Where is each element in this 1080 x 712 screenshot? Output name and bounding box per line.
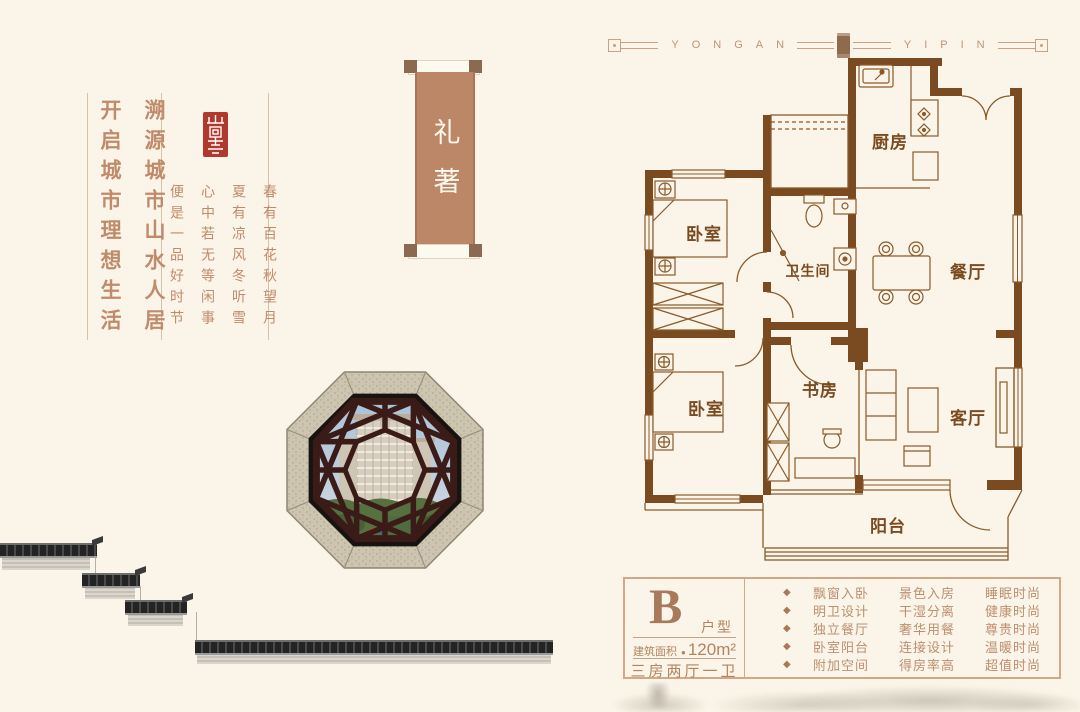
- feature-row: ◆ 明卫设计 干湿分离 健康时尚: [783, 602, 1071, 618]
- poem-block: 春有百花秋望月 夏有凉风冬听雪 心中若无等闲事 便是一品好时节: [167, 184, 280, 331]
- wall-cap: [0, 543, 97, 558]
- unit-info-box: B 户型 建筑面积 ● 120m² 三房两厅一卫 ◆ 飘窗入卧 景色入房 睡眠时…: [623, 577, 1061, 679]
- scroll-title: 礼著: [426, 102, 465, 216]
- room-label-study: 书房: [802, 380, 838, 400]
- feature-cell: 明卫设计: [813, 601, 899, 620]
- poem-line: 便是一品好时节: [167, 184, 187, 331]
- room-label-dining: 餐厅: [950, 262, 986, 282]
- diamond-bullet-icon: ◆: [783, 623, 813, 634]
- room-label-bathroom: 卫生间: [786, 263, 831, 279]
- wall-base: [128, 615, 183, 626]
- area-value: 120m²: [688, 640, 736, 660]
- slogan-line: 开启城市理想生活: [94, 99, 124, 339]
- wall-cap: [82, 573, 140, 588]
- feature-cell: 连接设计: [899, 637, 985, 656]
- feature-list: ◆ 飘窗入卧 景色入房 睡眠时尚 ◆ 明卫设计 干湿分离 健康时尚 ◆ 独立餐厅…: [745, 579, 1071, 677]
- room-label-balcony: 阳台: [870, 516, 906, 536]
- divider: [633, 658, 736, 659]
- feature-cell: 附加空间: [813, 655, 899, 674]
- feature-row: ◆ 飘窗入卧 景色入房 睡眠时尚: [783, 584, 1071, 600]
- wall-connector: [140, 586, 141, 600]
- unit-layout: 三房两厅一卫: [625, 660, 744, 681]
- unit-summary: B 户型 建筑面积 ● 120m² 三房两厅一卫: [625, 579, 745, 677]
- room-label-living: 客厅: [949, 408, 986, 428]
- diamond-bullet-icon: ◆: [783, 587, 813, 598]
- feature-row: ◆ 独立餐厅 奢华用餐 尊贵时尚: [783, 620, 1071, 636]
- poster-page: 溯源城市山水人居 开启城市理想生活 春有百花秋望月 夏有凉风冬听雪 心中若无等闲…: [0, 0, 1080, 712]
- diamond-bullet-icon: ◆: [783, 659, 813, 670]
- feature-cell: 干湿分离: [899, 601, 985, 620]
- feature-cell: 卧室阳台: [813, 637, 899, 656]
- wall-base: [2, 558, 90, 570]
- wall-cap-flick: [135, 566, 146, 576]
- diamond-bullet-icon: ◆: [783, 605, 813, 616]
- header-rule: [998, 42, 1035, 49]
- octagonal-lattice-window: [277, 362, 493, 578]
- poem-line: 心中若无等闲事: [198, 184, 218, 331]
- feature-cell: 温暖时尚: [985, 637, 1071, 656]
- header-rule: [853, 42, 890, 49]
- poem-line: 春有百花秋望月: [260, 184, 280, 331]
- wall-base: [85, 588, 135, 599]
- room-label-kitchen: 厨房: [872, 132, 908, 152]
- scroll-cap: [469, 244, 482, 257]
- feature-cell: 奢华用餐: [899, 619, 985, 638]
- feature-cell: 得房率高: [899, 655, 985, 674]
- room-label-bedroom2: 卧室: [688, 399, 724, 419]
- header-rule: [621, 42, 658, 49]
- red-seal-icon: [203, 112, 228, 157]
- divider: [633, 637, 736, 638]
- divider: [87, 93, 88, 340]
- wall-cap: [125, 600, 187, 615]
- poem-line: 夏有凉风冬听雪: [229, 184, 249, 331]
- wall-connector: [95, 556, 96, 573]
- feature-cell: 独立餐厅: [813, 619, 899, 638]
- wall-cap: [195, 640, 553, 655]
- header-rule: [797, 42, 834, 49]
- unit-type-letter: B: [649, 577, 682, 635]
- unit-area-row: 建筑面积 ● 120m²: [633, 640, 736, 660]
- unit-type-label: 户型: [701, 617, 733, 637]
- area-label: 建筑面积: [633, 643, 677, 659]
- floor-plan: 卧室 卫生间 厨房 餐厅 卧室 书房 客厅 阳台: [620, 50, 1065, 575]
- wall-base: [197, 655, 551, 664]
- area-bullet-icon: ●: [681, 648, 686, 657]
- feature-cell: 睡眠时尚: [985, 583, 1071, 602]
- ink-mountain-wash: [490, 683, 1080, 712]
- wall-cap-flick: [182, 593, 193, 603]
- room-label-bedroom1: 卧室: [686, 224, 722, 244]
- slogan-block: 溯源城市山水人居 开启城市理想生活: [94, 99, 168, 339]
- feature-row: ◆ 附加空间 得房率高 超值时尚: [783, 656, 1071, 672]
- feature-cell: 超值时尚: [985, 655, 1071, 674]
- scroll-cap: [404, 244, 417, 257]
- feature-cell: 飘窗入卧: [813, 583, 899, 602]
- wall-cap-flick: [92, 536, 103, 546]
- feature-cell: 健康时尚: [985, 601, 1071, 620]
- diamond-bullet-icon: ◆: [783, 641, 813, 652]
- scroll-panel: 礼著: [415, 72, 475, 245]
- slogan-line: 溯源城市山水人居: [138, 99, 168, 339]
- feature-cell: 景色入房: [899, 583, 985, 602]
- feature-cell: 尊贵时尚: [985, 619, 1071, 638]
- feature-row: ◆ 卧室阳台 连接设计 温暖时尚: [783, 638, 1071, 654]
- wall-connector: [196, 612, 197, 641]
